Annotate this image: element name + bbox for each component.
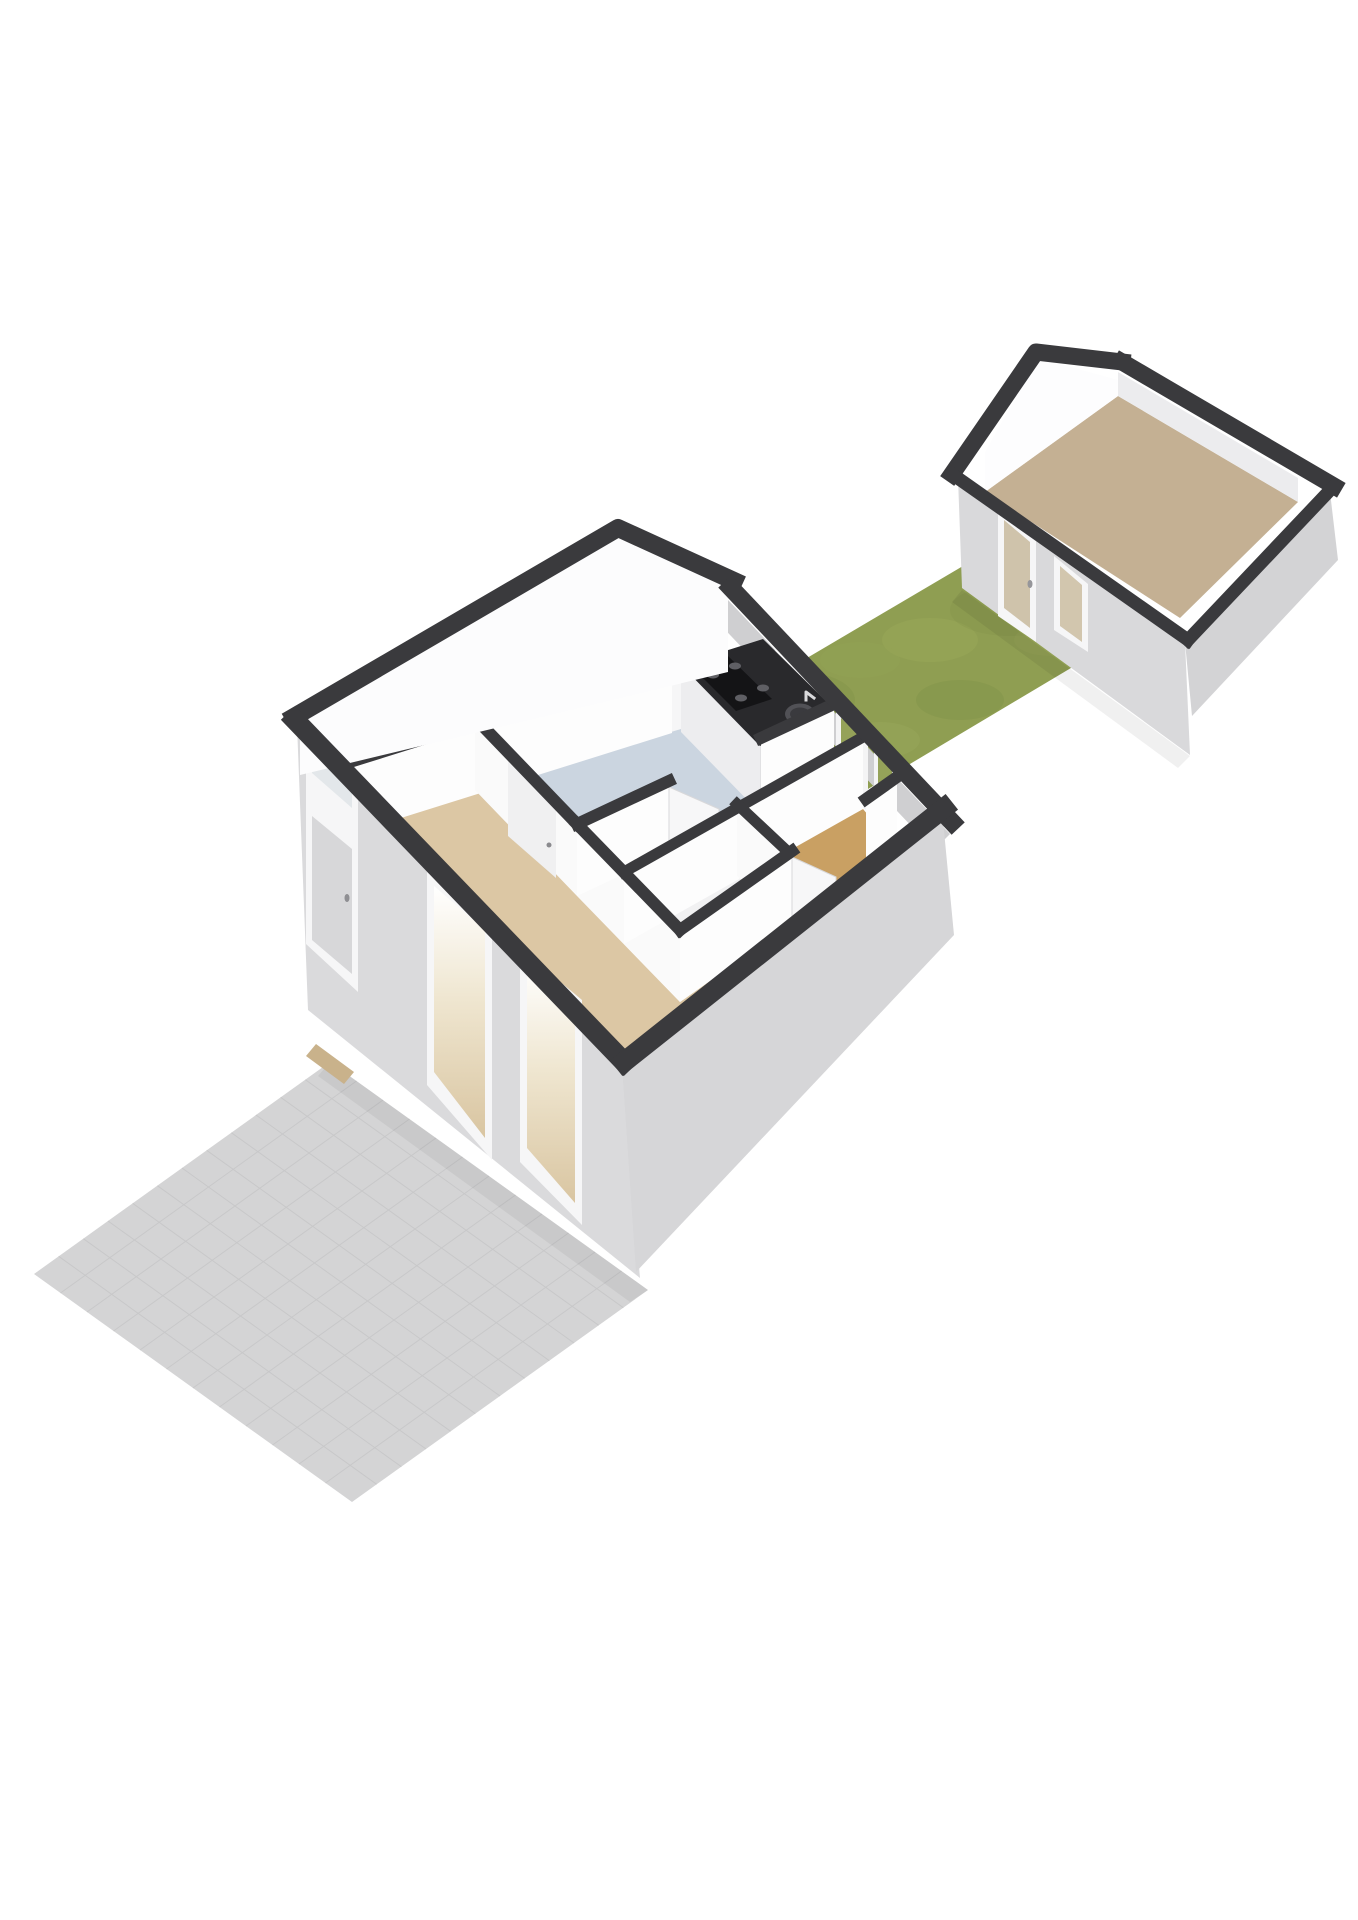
cooktop-burner xyxy=(729,663,741,670)
floorplan-3d-canvas xyxy=(0,0,1358,1920)
scene-root xyxy=(34,352,1338,1502)
grass-texture-blob xyxy=(820,642,900,678)
cooktop-burner xyxy=(757,685,769,692)
front-door-handle xyxy=(345,894,350,902)
floorplan-3d-svg xyxy=(0,0,1358,1920)
cooktop-burner xyxy=(735,695,747,702)
kitchen-living-door-handle xyxy=(547,843,552,848)
shed-door-handle xyxy=(1028,580,1033,588)
grass-texture-blob xyxy=(916,680,1004,720)
